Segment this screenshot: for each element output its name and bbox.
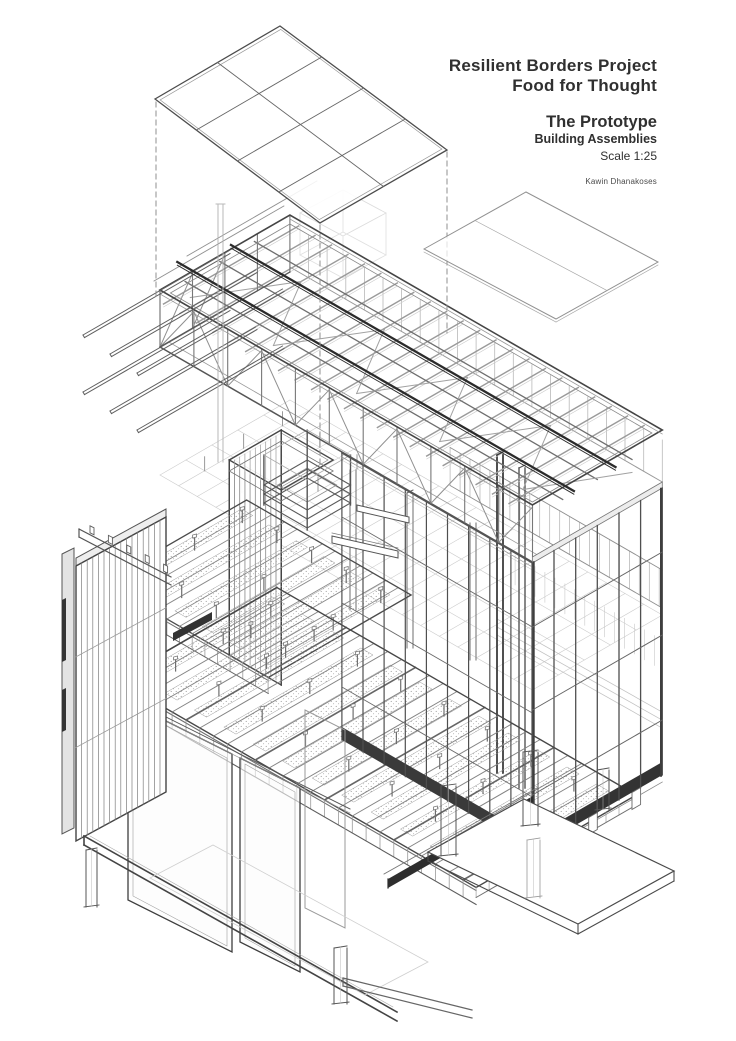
drawing-subtitle: Building Assemblies (449, 132, 657, 146)
project-title-line-2: Food for Thought (449, 76, 657, 96)
author-name: Kawin Dhanakoses (449, 177, 657, 186)
inner-deck-lines (497, 619, 662, 728)
roof-sheathing-panel-offset (424, 192, 658, 322)
slatted-wall-assembly (62, 509, 171, 841)
title-block: Resilient Borders Project Food for Thoug… (449, 56, 657, 186)
scale-label: Scale 1:25 (449, 149, 657, 163)
drawing-title: The Prototype (449, 113, 657, 131)
drawing-sheet: Resilient Borders Project Food for Thoug… (0, 0, 736, 1041)
project-title-line-1: Resilient Borders Project (449, 56, 657, 76)
roof-sheathing-panel (155, 26, 447, 223)
